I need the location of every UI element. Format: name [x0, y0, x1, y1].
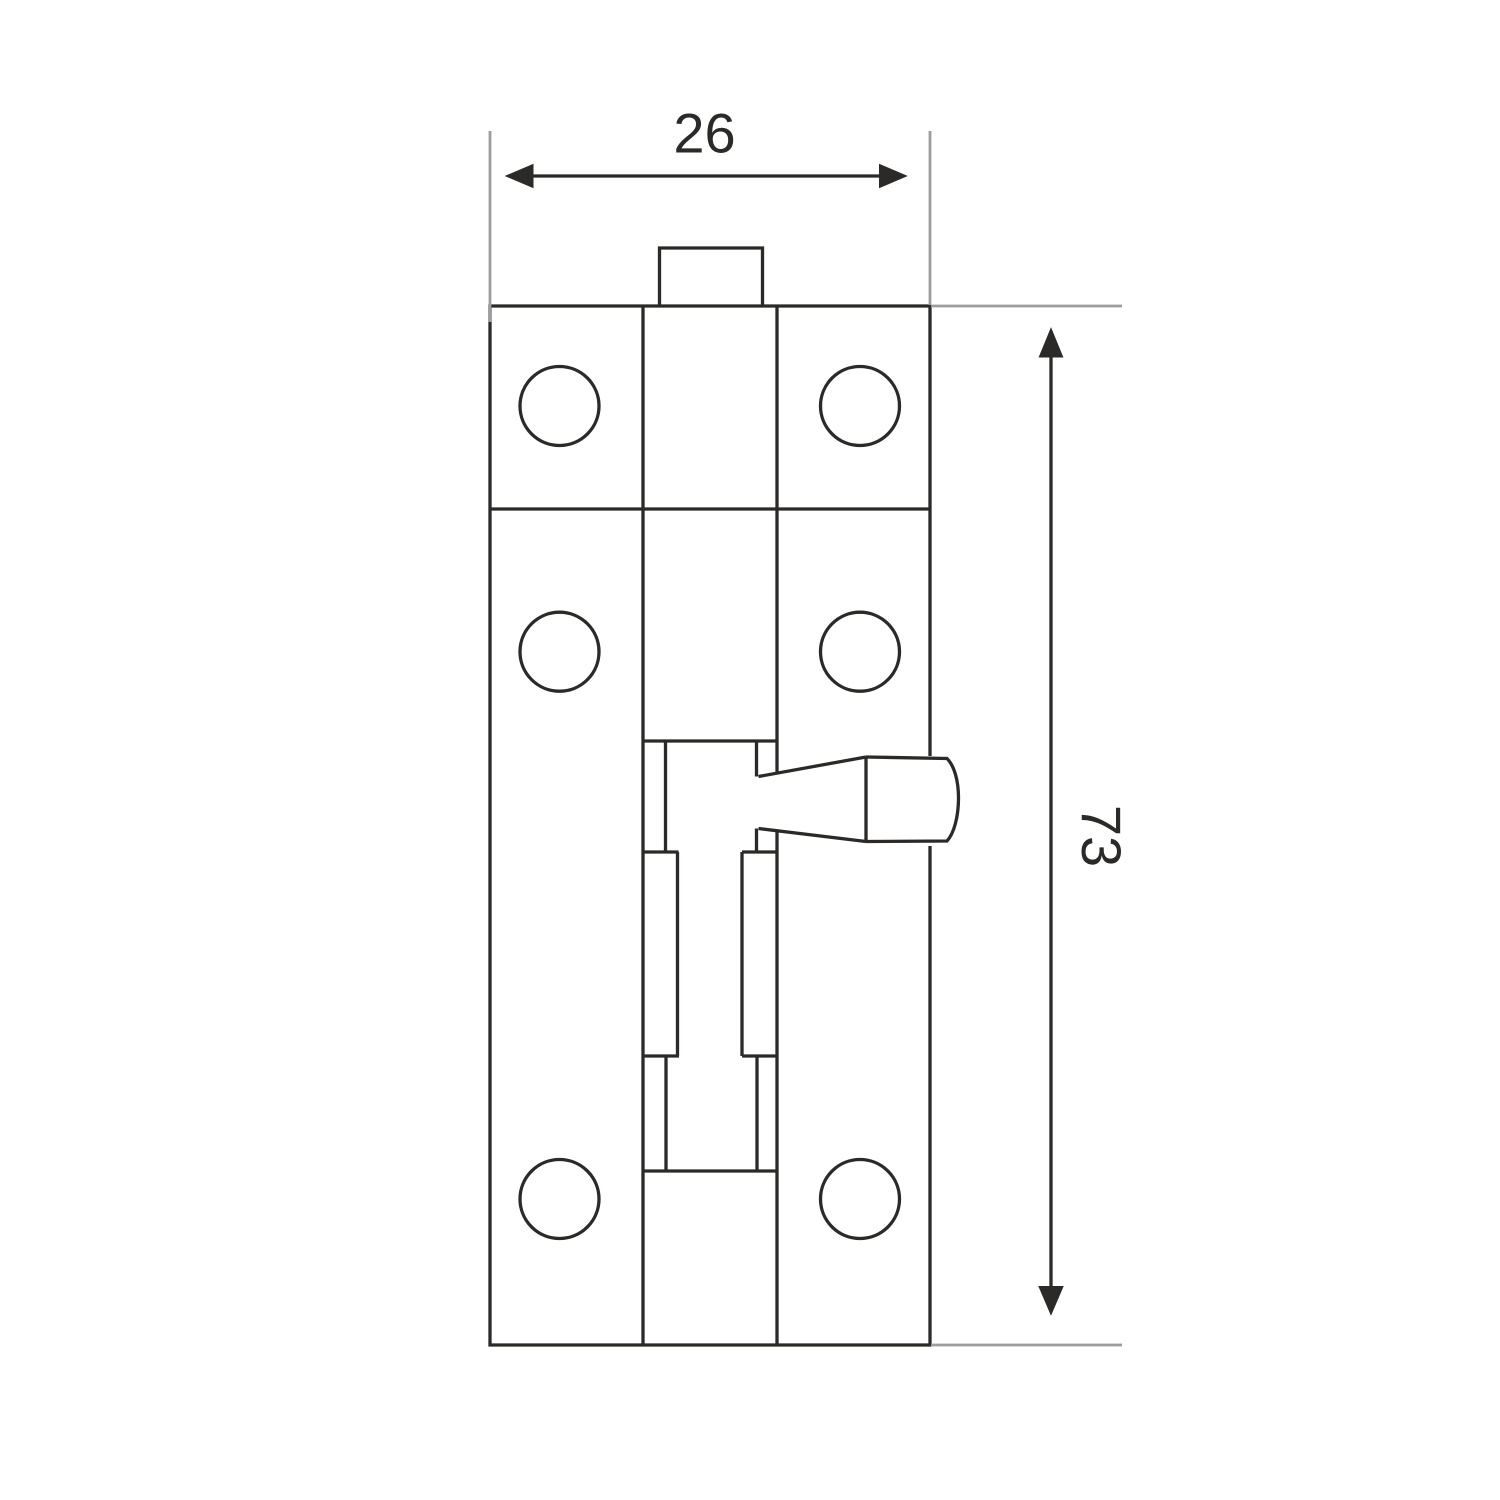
svg-text:26: 26 — [673, 102, 735, 165]
svg-text:73: 73 — [1070, 805, 1133, 867]
